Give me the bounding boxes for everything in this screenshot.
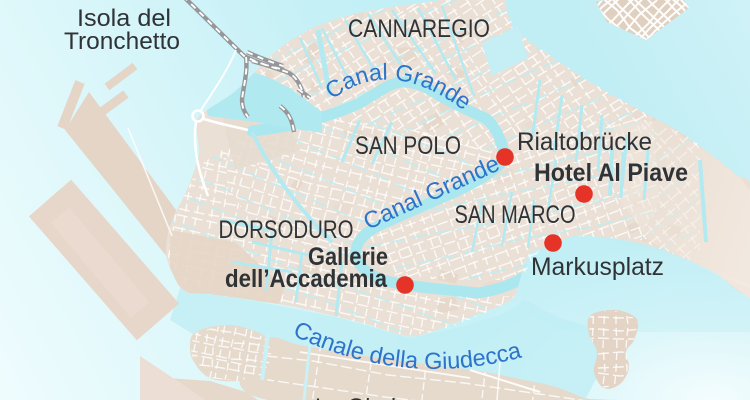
svg-text:dell’Accademia: dell’Accademia <box>225 265 388 293</box>
svg-text:SAN MARCO: SAN MARCO <box>455 201 576 229</box>
svg-text:Hotel Al Piave: Hotel Al Piave <box>534 159 688 187</box>
svg-text:Tronchetto: Tronchetto <box>64 28 180 55</box>
svg-text:Markusplatz: Markusplatz <box>531 253 664 281</box>
svg-text:La Giudecca: La Giudecca <box>315 394 445 400</box>
svg-text:CANNAREGIO: CANNAREGIO <box>348 15 490 43</box>
svg-text:SAN POLO: SAN POLO <box>355 132 461 160</box>
svg-text:DORSODURO: DORSODURO <box>219 216 354 244</box>
svg-text:Rialtobrücke: Rialtobrücke <box>517 128 652 156</box>
